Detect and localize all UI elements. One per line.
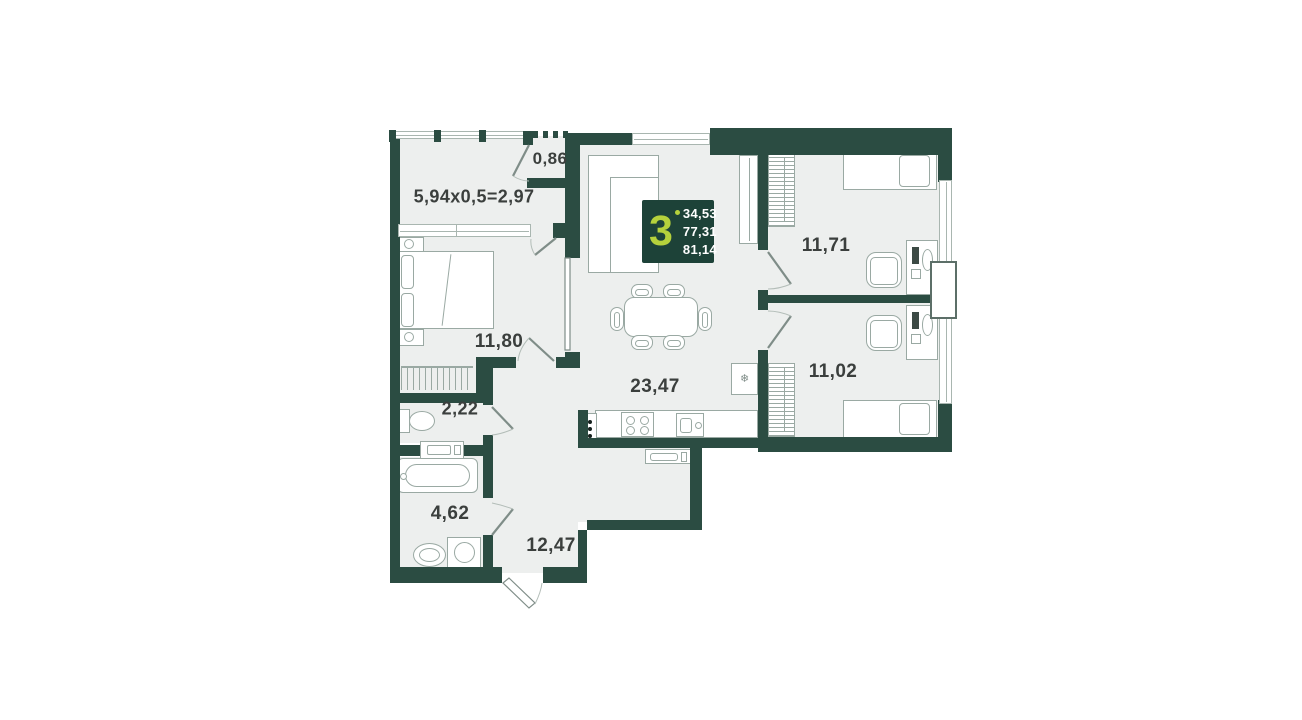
rooms-count: 3 <box>649 200 673 263</box>
room-label-pantry: 0,86 <box>533 149 568 169</box>
wc-door-leaf <box>492 407 513 429</box>
door-swing <box>492 429 513 435</box>
door-swing <box>492 503 513 509</box>
door-swing <box>513 176 529 181</box>
superscript-dot-icon <box>675 210 680 215</box>
floor-plan: ❄ <box>0 0 1302 720</box>
room-label-loggia: 5,94x0,5=2,97 <box>414 187 535 208</box>
bath-door-leaf <box>492 509 513 535</box>
balcony-door-leaf <box>535 238 556 255</box>
bedroom-door-leaf <box>529 338 554 361</box>
pantry-door-leaf <box>513 145 529 176</box>
room-label-wc: 2,22 <box>442 399 479 420</box>
apartment-info-badge: 3 34,53 77,31 81,14 <box>642 200 714 263</box>
bedroom3-door-leaf <box>768 316 791 348</box>
door-swing <box>768 311 791 316</box>
bedroom2-door-leaf <box>768 252 791 284</box>
room-label-bedroom3: 11,02 <box>809 361 858 383</box>
pocket-door-leaf <box>565 258 570 350</box>
room-label-bedroom2: 11,71 <box>802 235 851 257</box>
room-label-living: 23,47 <box>630 376 680 398</box>
door-swing <box>531 239 535 255</box>
door-swing <box>768 284 791 289</box>
room-label-hallway: 12,47 <box>526 535 576 557</box>
door-swing <box>535 583 542 604</box>
area-value-main: 77,31 <box>683 223 717 241</box>
area-value-total: 81,14 <box>683 241 717 259</box>
room-label-bathroom: 4,62 <box>431 503 470 525</box>
area-value-living: 34,53 <box>683 205 717 223</box>
room-label-bedroom: 11,80 <box>475 331 524 353</box>
entrance-door-leaf <box>503 578 535 608</box>
door-swings <box>0 0 1302 720</box>
